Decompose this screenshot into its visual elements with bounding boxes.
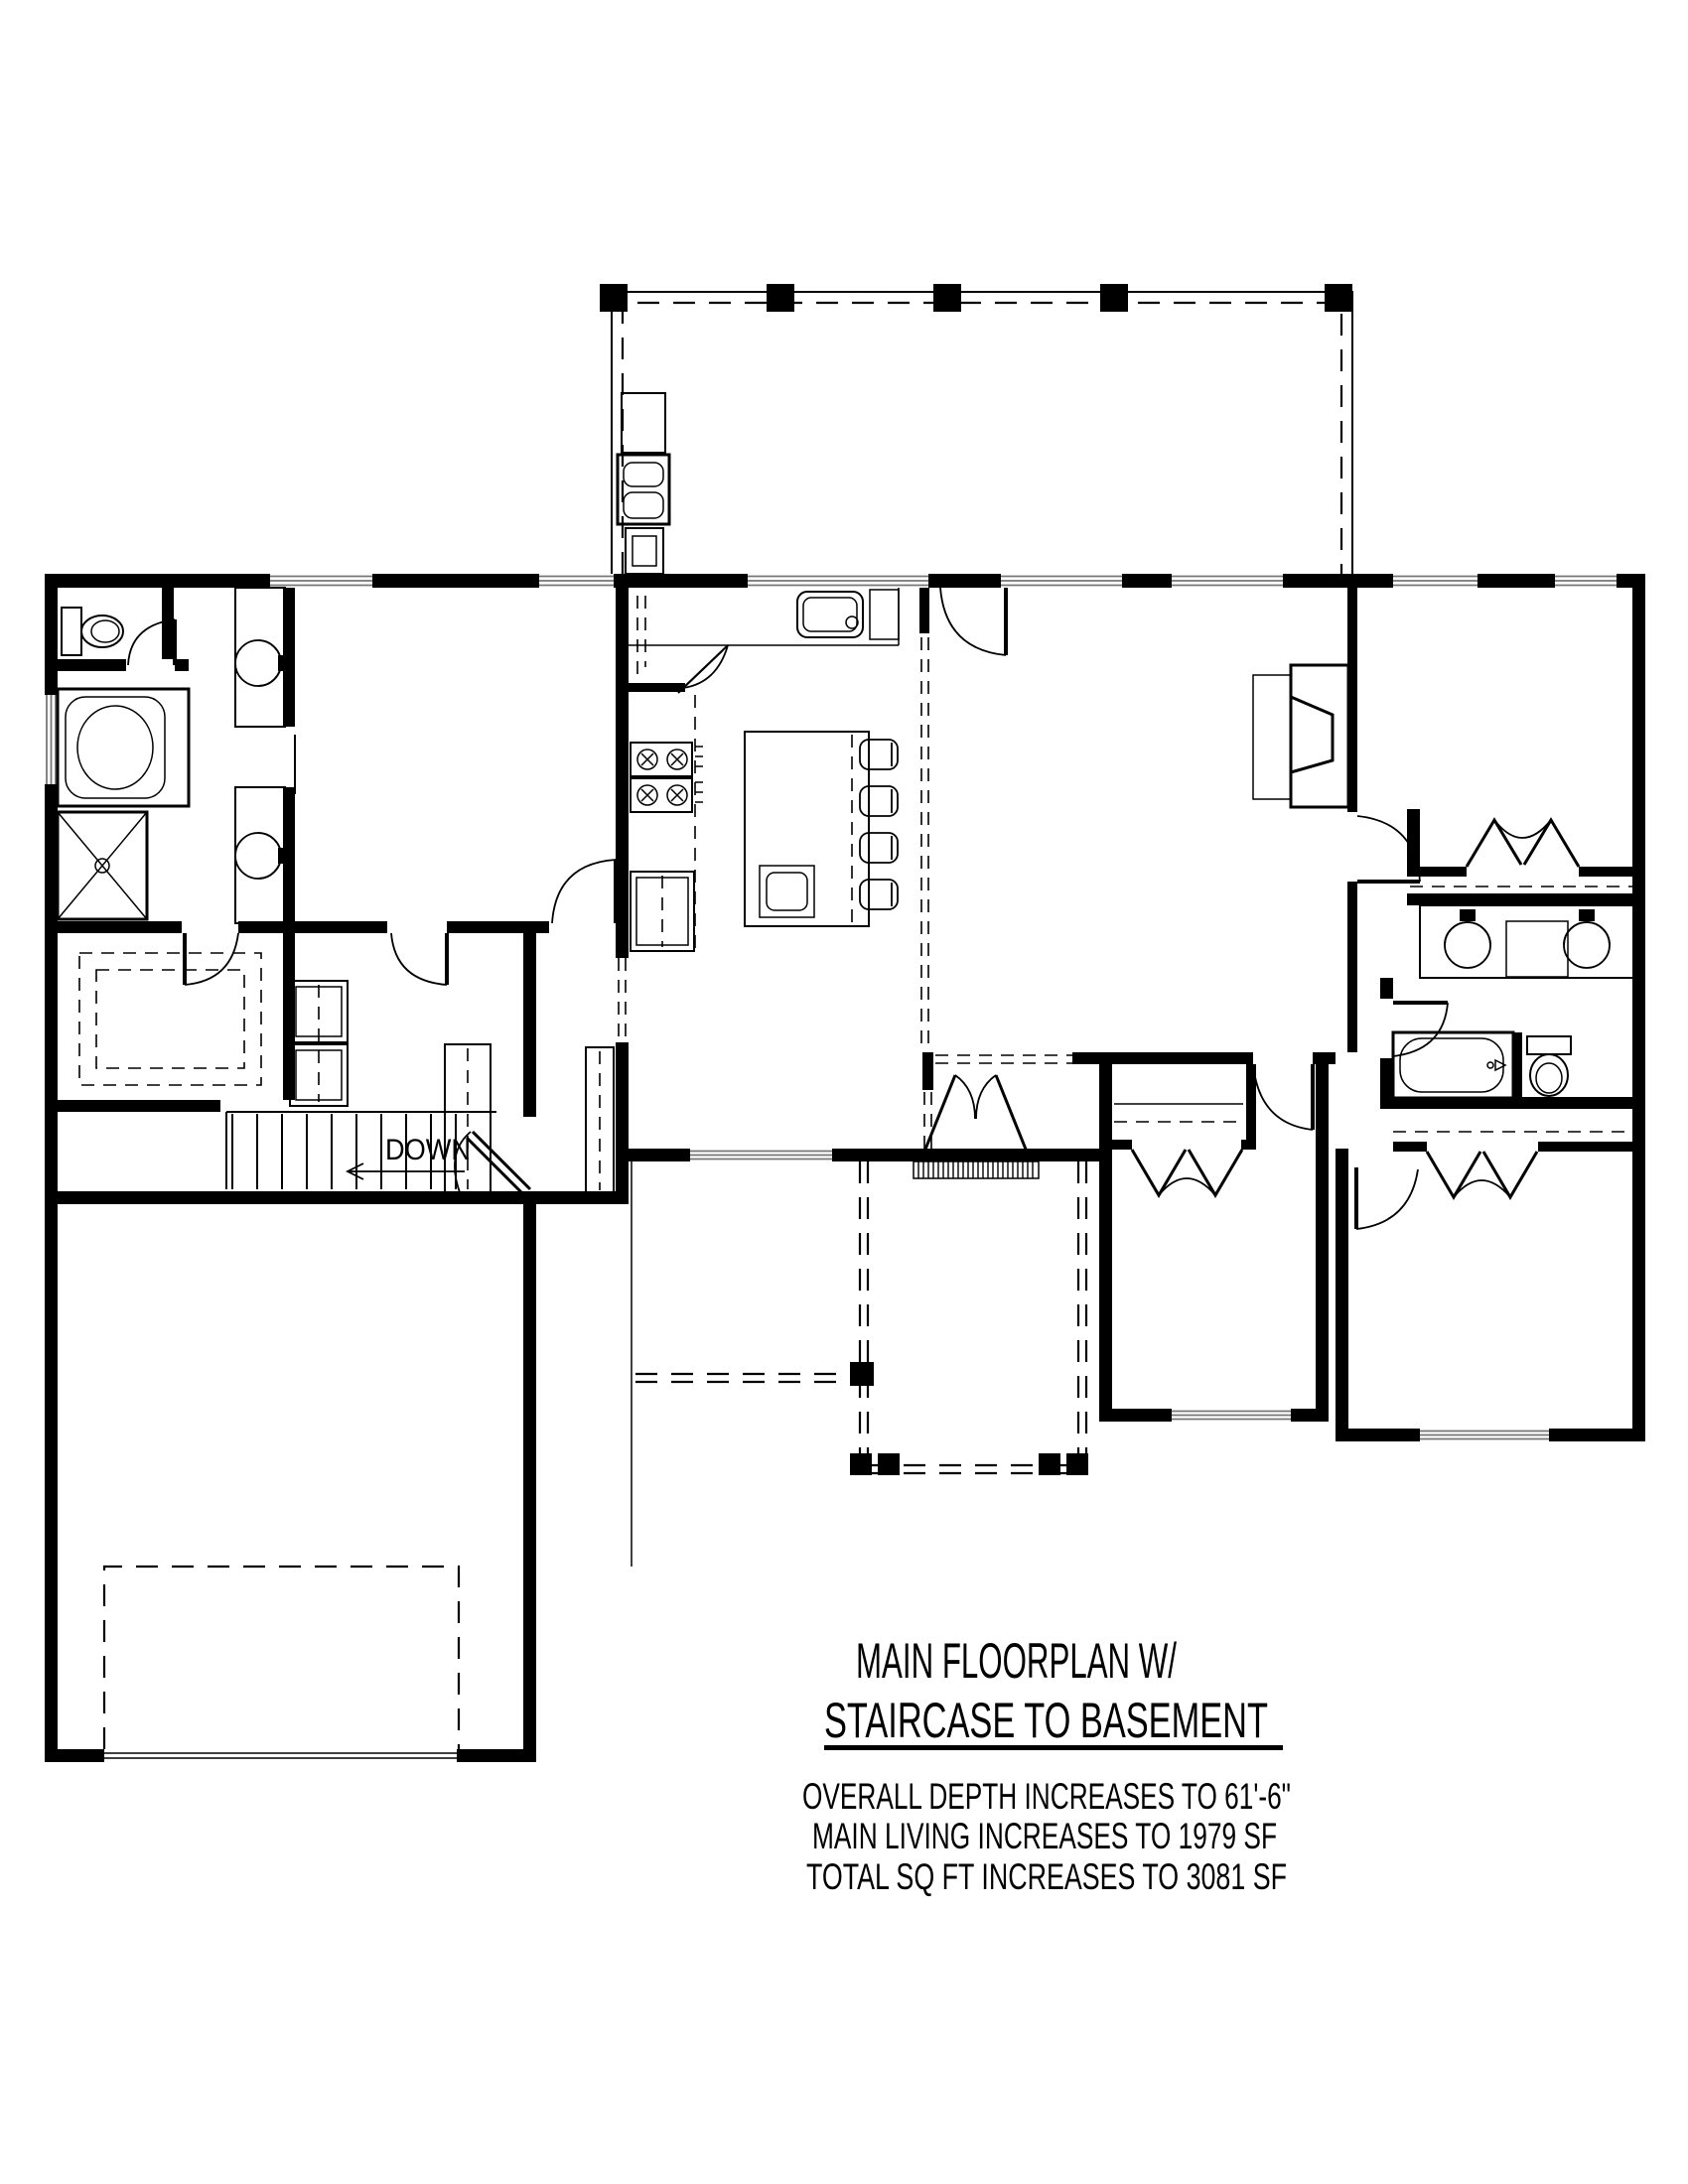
front-door-sill	[914, 1161, 1039, 1178]
stair-down-label: DOWN	[385, 1134, 471, 1166]
kitchen-sink-icon	[797, 592, 863, 637]
exterior-walls	[45, 574, 1645, 1762]
floorplan-page: DOWN MAIN FLOORPLAN W/ STAIRCASE TO BASE…	[0, 0, 1688, 2184]
bifold-closet-door-icon	[1114, 1104, 1243, 1195]
double-vanity	[1420, 905, 1643, 978]
outdoor-kitchen	[618, 393, 669, 574]
bathtub-icon	[58, 689, 189, 806]
dishwasher	[870, 590, 899, 639]
kitchen-island-icon	[745, 732, 869, 926]
mudroom-lockers	[586, 1047, 614, 1194]
porch-post-icon	[850, 1362, 1088, 1475]
shower-icon	[58, 812, 147, 919]
washer-dryer-icon	[290, 981, 348, 1106]
walk-in-closet-shelves	[79, 953, 261, 1085]
bedroom-2	[1114, 1104, 1243, 1195]
note-main-living: MAIN LIVING INCREASES TO 1979 SF	[812, 1816, 1277, 1856]
kitchen	[629, 588, 899, 951]
bifold-closet-door-icon	[1393, 1132, 1638, 1197]
note-overall-depth: OVERALL DEPTH INCREASES TO 61'-6"	[802, 1776, 1291, 1817]
bedroom-3	[1393, 1132, 1638, 1197]
title-line-1: MAIN FLOORPLAN W/	[856, 1633, 1177, 1689]
note-total-sqft: TOTAL SQ FT INCREASES TO 3081 SF	[806, 1856, 1287, 1897]
vanity-sink-icon	[235, 588, 295, 923]
toilet-icon	[1527, 1036, 1571, 1096]
windows	[45, 574, 1617, 1441]
garage	[104, 1567, 459, 1762]
fireplace-icon	[1253, 665, 1348, 807]
vanity-sink-icon	[1445, 909, 1610, 968]
bathtub-icon	[1393, 1032, 1513, 1098]
title-block: MAIN FLOORPLAN W/ STAIRCASE TO BASEMENT …	[802, 1633, 1291, 1897]
front-porch	[632, 1161, 1088, 1567]
title-underline	[824, 1745, 1283, 1750]
garage-door-icon	[104, 1749, 457, 1762]
great-room	[1253, 665, 1348, 807]
window-icon	[45, 574, 1617, 1441]
deck-post-icon	[600, 284, 1352, 312]
range-icon	[631, 743, 703, 812]
rear-deck	[600, 284, 1352, 574]
grill-icon	[618, 455, 669, 524]
pantry	[629, 596, 728, 693]
floorplan-drawing: DOWN MAIN FLOORPLAN W/ STAIRCASE TO BASE…	[0, 0, 1688, 2184]
toilet-icon	[62, 608, 123, 655]
staircase: DOWN	[226, 1112, 496, 1189]
title-line-2: STAIRCASE TO BASEMENT	[824, 1693, 1268, 1748]
refrigerator-icon	[631, 872, 694, 951]
bar-stool-icon	[860, 740, 898, 909]
